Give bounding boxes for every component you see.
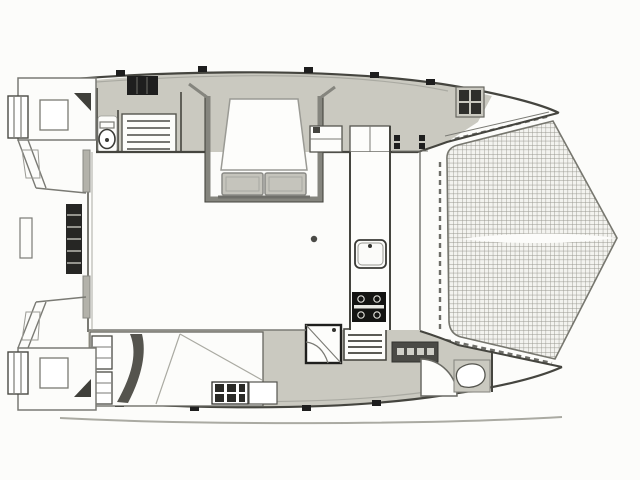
boarding-ladder bbox=[66, 204, 82, 274]
starboard-companionway-steps bbox=[392, 342, 438, 362]
port-companionway-steps bbox=[127, 76, 158, 95]
heads-counter bbox=[122, 114, 176, 152]
aft-cabin bbox=[90, 332, 277, 406]
galley-sink bbox=[355, 240, 386, 268]
locker-box bbox=[249, 382, 277, 404]
forepeak-wc bbox=[454, 360, 490, 392]
galley bbox=[350, 126, 390, 330]
aft-door-track-upper bbox=[83, 150, 90, 192]
boarding-step bbox=[20, 218, 32, 258]
galley-stove bbox=[352, 292, 386, 322]
nav-counter-boxes bbox=[310, 126, 390, 152]
dinette-table bbox=[221, 99, 307, 170]
fridge-vent-unit bbox=[344, 329, 386, 360]
drawer-grid bbox=[212, 382, 248, 404]
floor-plan-svg: Catamaran deck and interior floor plan d… bbox=[0, 0, 640, 480]
forward-hatch bbox=[456, 87, 484, 117]
mast-post bbox=[311, 236, 317, 242]
shower-pan bbox=[306, 325, 341, 363]
heads-toilet bbox=[98, 116, 117, 152]
floor-plan-drawing: Catamaran deck and interior floor plan d… bbox=[0, 0, 640, 480]
